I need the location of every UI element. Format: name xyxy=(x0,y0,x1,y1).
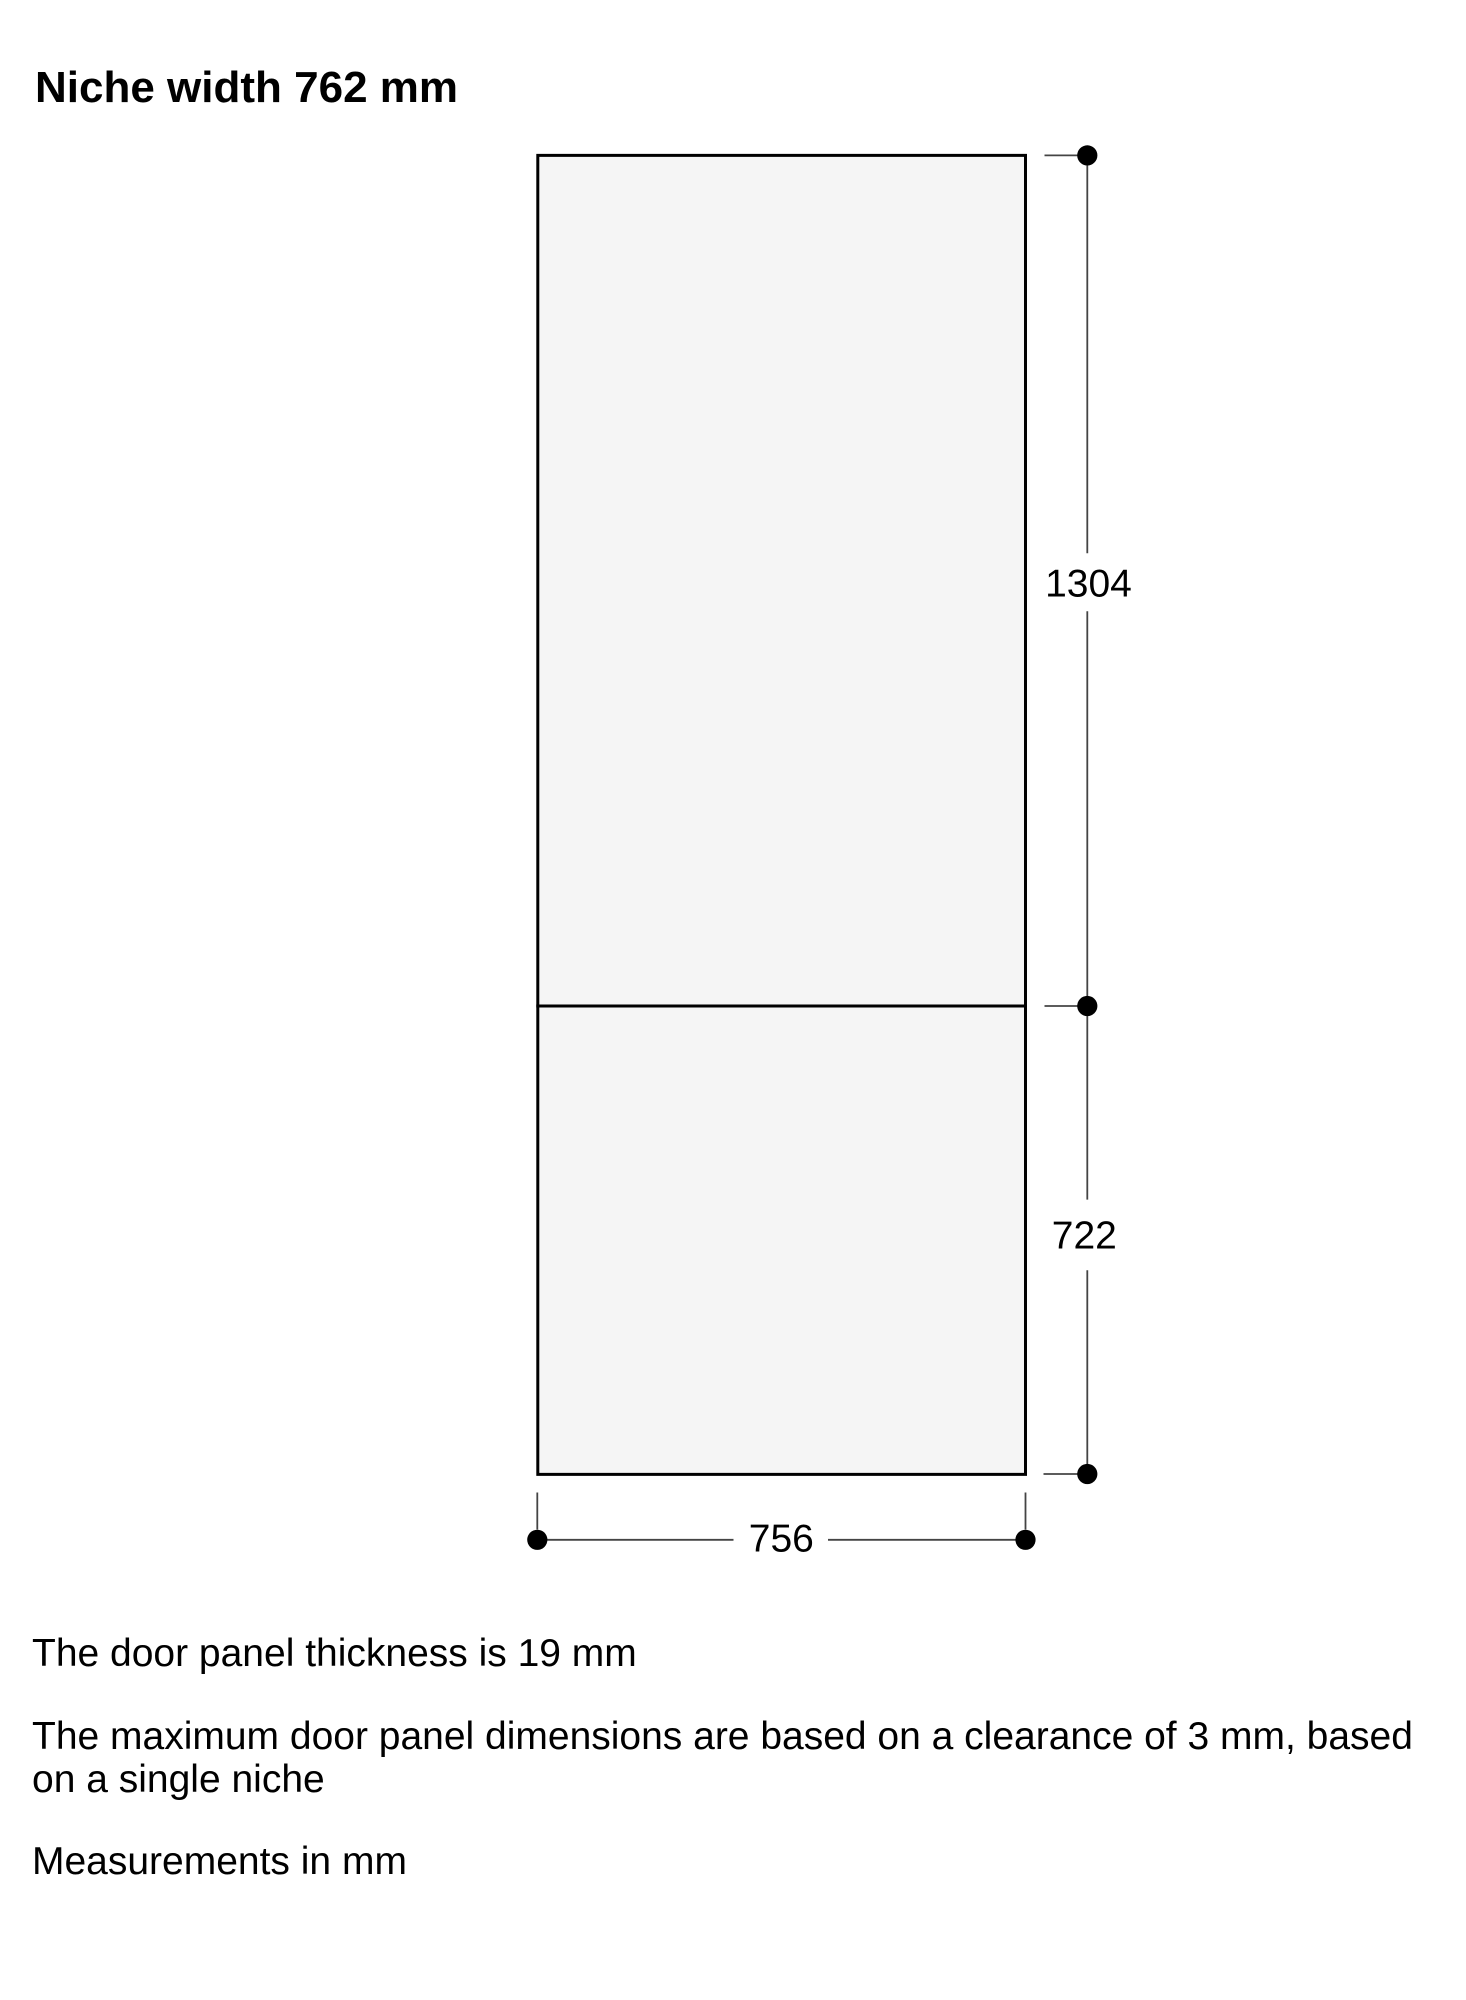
svg-text:756: 756 xyxy=(749,1518,814,1561)
svg-text:1304: 1304 xyxy=(1045,563,1132,606)
svg-text:722: 722 xyxy=(1052,1215,1117,1258)
